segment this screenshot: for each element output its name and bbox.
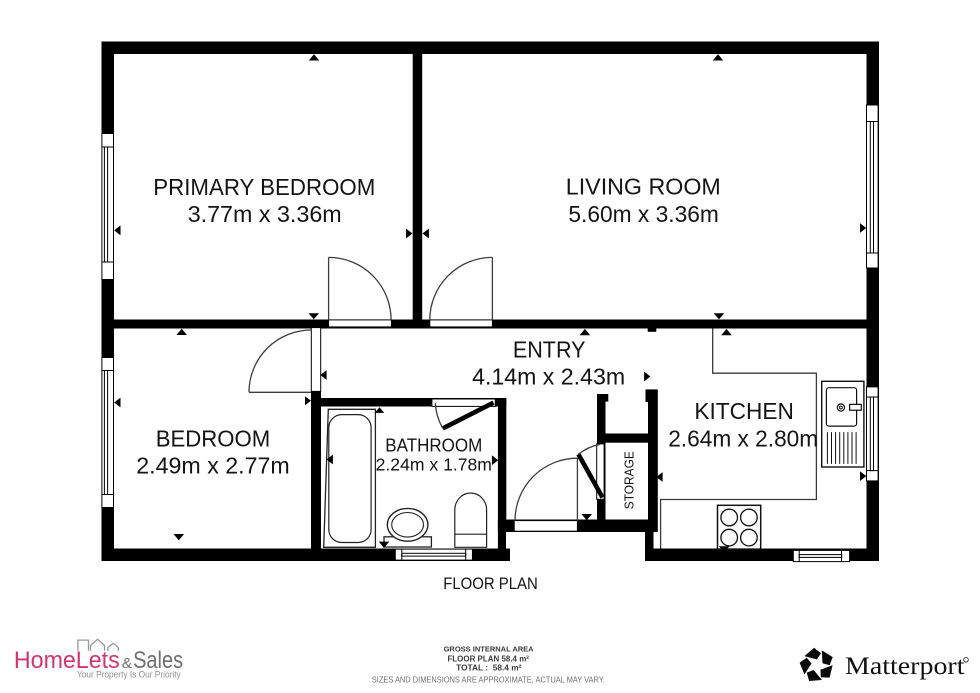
- svg-text:STORAGE: STORAGE: [622, 451, 636, 509]
- svg-text:ENTRY: ENTRY: [513, 337, 586, 363]
- svg-text:BEDROOM: BEDROOM: [156, 426, 271, 452]
- svg-text:GROSS INTERNAL AREA: GROSS INTERNAL AREA: [444, 644, 535, 653]
- svg-text:2.24m x 1.78m: 2.24m x 1.78m: [376, 455, 492, 475]
- svg-text:2.64m x 2.80m: 2.64m x 2.80m: [668, 426, 818, 452]
- svg-text:BATHROOM: BATHROOM: [385, 436, 482, 456]
- svg-text:2.49m x 2.77m: 2.49m x 2.77m: [136, 453, 290, 479]
- svg-text:LIVING ROOM: LIVING ROOM: [566, 174, 721, 200]
- svg-text:PRIMARY BEDROOM: PRIMARY BEDROOM: [153, 174, 375, 200]
- svg-text:Matterport: Matterport: [845, 653, 965, 680]
- svg-text:KITCHEN: KITCHEN: [694, 398, 794, 424]
- svg-text:4.14m x 2.43m: 4.14m x 2.43m: [472, 364, 625, 390]
- svg-text:FLOOR PLAN: FLOOR PLAN: [443, 574, 538, 593]
- svg-text:5.60m x 3.36m: 5.60m x 3.36m: [568, 201, 719, 227]
- svg-text:3.77m x 3.36m: 3.77m x 3.36m: [188, 201, 342, 227]
- svg-text:Your Property Is Our Priority: Your Property Is Our Priority: [77, 669, 181, 680]
- svg-text:SIZES AND DIMENSIONS ARE APPRO: SIZES AND DIMENSIONS ARE APPROXIMATE, AC…: [372, 675, 605, 685]
- svg-text:FLOOR PLAN 58.4 m²: FLOOR PLAN 58.4 m²: [447, 654, 529, 663]
- svg-text:TOTAL : 58.4 m²: TOTAL : 58.4 m²: [456, 663, 522, 672]
